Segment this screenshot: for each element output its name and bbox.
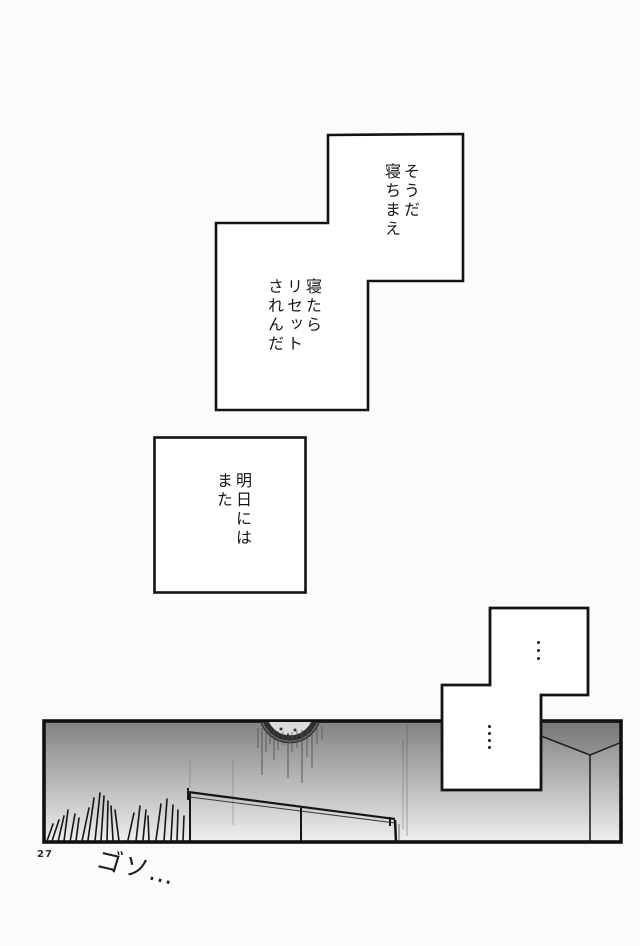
page-number: 27 [37,849,53,860]
ellipsis-dot [488,746,491,749]
dialogue-2-col-3: されんだ [265,278,284,360]
dialogue-2-col-2: リセット [284,278,303,360]
ellipsis-dot [537,641,540,644]
ellipsis-dot [537,657,540,660]
dialogue-2-col-1: 寝たら [303,278,322,360]
ellipsis-top [537,641,540,660]
dialogue-1-col-1: そうだ [401,163,420,253]
dialogue-3-col-1: 明日には [233,472,252,554]
ellipsis-dot [488,739,491,742]
wall-clock [260,682,321,743]
dialogue-1: そうだ 寝ちまえ [382,163,420,253]
dialogue-2: 寝たら リセット されんだ [265,278,322,360]
ellipsis-bottom [488,725,491,749]
page-artwork [0,0,640,946]
ellipsis-dot [537,649,540,652]
dialogue-3: 明日には また [214,472,252,554]
speech-panel-top-stepped [216,134,463,410]
ellipsis-dot [488,732,491,735]
dialogue-1-col-2: 寝ちまえ [382,163,401,253]
ellipsis-dot [488,725,491,728]
manga-page: そうだ 寝ちまえ 寝たら リセット されんだ 明日には また 27 ゴソ… [0,0,640,946]
dialogue-3-col-2: また [214,472,233,554]
